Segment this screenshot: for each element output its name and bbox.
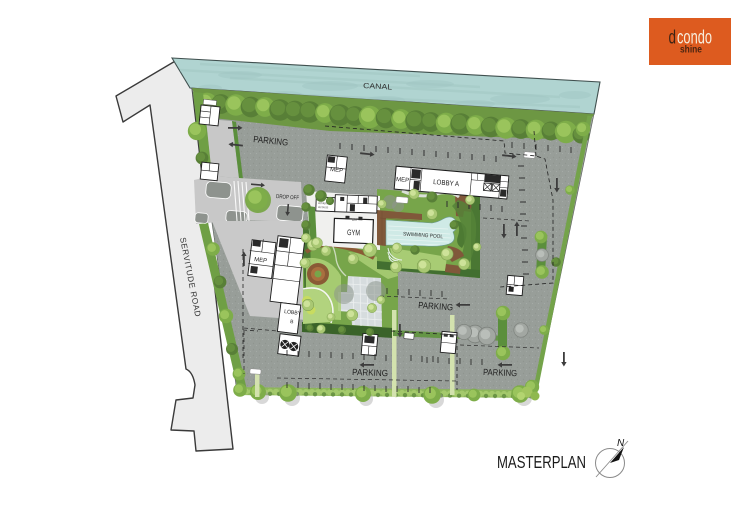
svg-text:N: N [617,438,625,449]
svg-text:Access: Access [318,205,329,209]
svg-text:d: d [669,28,677,49]
svg-text:MEP: MEP [396,177,409,184]
svg-text:GYM: GYM [347,228,361,237]
svg-text:PARKING: PARKING [483,367,517,378]
svg-text:MASTERPLAN: MASTERPLAN [497,452,586,472]
svg-text:CANAL: CANAL [363,81,392,92]
svg-text:PARKING: PARKING [352,367,388,378]
svg-text:DG: DG [352,218,357,222]
svg-text:shine: shine [680,45,702,56]
